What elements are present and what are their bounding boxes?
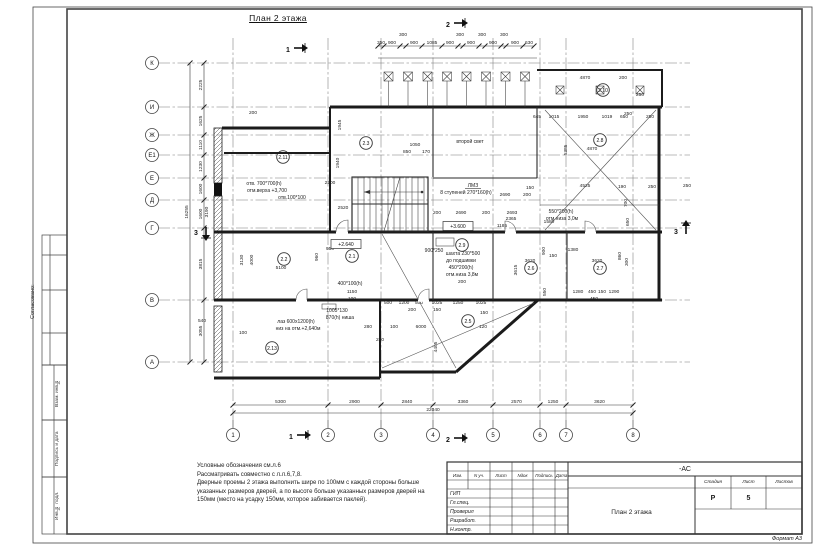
dim-label: 1015 <box>549 114 560 120</box>
room-tag: 2.5 <box>465 319 472 325</box>
dim-label: 900 <box>467 40 475 46</box>
dim-label: 1050 <box>410 142 421 148</box>
dim-label: 300 <box>456 32 464 38</box>
dim-label: 1280 <box>573 289 584 295</box>
section-mark <box>294 43 308 53</box>
section-label: 2 <box>446 437 450 444</box>
dim-label: 100 <box>390 324 398 330</box>
dim-label: 5385 <box>563 144 569 155</box>
dim-label: 4870 <box>587 146 598 152</box>
dim-label: 3620 <box>594 399 605 405</box>
dim-label: 200 <box>619 75 627 81</box>
dim-label: 2520 <box>338 205 349 211</box>
axis-label: Е1 <box>148 153 156 159</box>
col-nuch: N уч. <box>468 471 490 480</box>
dim-label: 1250 <box>548 399 559 405</box>
col-izm: Изм. <box>447 471 468 480</box>
section-label: 3 <box>194 230 198 237</box>
dim-label: 2690 <box>456 210 467 216</box>
section-mark <box>454 433 468 443</box>
room-tag: 2.9 <box>459 243 466 249</box>
dim-label: 550 <box>542 288 548 296</box>
drawing-title: План 2 этажа <box>568 492 695 532</box>
room-tag: 2.8 <box>597 138 604 144</box>
annotation: 870(h) ниша <box>326 315 354 321</box>
role-razrabot: Разработ. <box>450 518 476 524</box>
dim-label: 200 <box>458 279 466 285</box>
dim-label: 250 <box>648 184 656 190</box>
section-label: 2 <box>446 22 450 29</box>
dim-label: 3360 <box>458 399 469 405</box>
annotation: низ на отм.+2,640м <box>276 326 321 332</box>
annotation: отм.низа 3,8м <box>446 272 479 278</box>
col-ndok: Nдок <box>512 471 533 480</box>
approved-label: Согласовано: <box>30 252 41 352</box>
side-box-podpis: Подпись и дата <box>55 421 66 476</box>
annotation: ЛМЗ <box>468 183 478 189</box>
dim-label: 1110 <box>198 140 204 150</box>
role-glspec: Гл.спец. <box>450 500 470 506</box>
dim-label: 100 <box>239 330 247 336</box>
axis-label: И <box>150 105 154 111</box>
drawing-sheet: 5300290028403360257012503620220402225162… <box>0 0 825 550</box>
dim-label: 900 <box>446 40 454 46</box>
dim-label: 1085 <box>427 40 438 46</box>
axis-label: К <box>150 61 154 67</box>
annotation: отм.верха +3,700 <box>247 188 287 194</box>
note-line: Дверные проемы 2 этажа выполнить шире по… <box>197 479 419 488</box>
side-box-vzam: Взам. инв.№ <box>55 366 66 419</box>
dim-label: 630 <box>525 40 533 46</box>
annotation: 450*200(h) <box>449 265 474 271</box>
sheet-value: 5 <box>731 489 766 508</box>
dim-label: 150 <box>549 253 557 259</box>
hatched-wall <box>214 128 222 183</box>
side-box-inv: Инв.№ подл. <box>55 478 66 533</box>
dim-label: 1150 <box>347 289 358 295</box>
dim-label: 860 <box>617 252 623 260</box>
dim-label: 900 <box>410 40 418 46</box>
dim-label: 900 <box>511 40 519 46</box>
dim-label: 4525 <box>580 183 591 189</box>
dim-label: 2840 <box>402 399 413 405</box>
role-gip: ГИП <box>450 491 460 497</box>
room-tag: 2.11 <box>278 155 288 161</box>
dim-label: 1945 <box>337 119 343 130</box>
dim-label: 200 <box>408 307 416 313</box>
dim-label: 960 <box>314 253 320 261</box>
dim-label: 650 <box>625 218 631 226</box>
room-tag: 2.2 <box>281 257 288 263</box>
level-mark: +3.600 <box>450 224 466 230</box>
sheets-label: Листов <box>766 477 802 487</box>
role-nkontr: Н.контр. <box>450 527 472 533</box>
dim-label: 540 <box>198 318 206 324</box>
dim-label: 4000 <box>249 254 255 265</box>
format-label: Формат А3 <box>702 536 802 542</box>
dim-label: 1230 <box>198 161 204 172</box>
dim-label: 300 <box>399 32 407 38</box>
dim-label: 1600 <box>198 183 204 194</box>
level-mark: +2.640 <box>338 242 354 248</box>
dim-label: 150 <box>480 310 488 316</box>
dim-label: 3055 <box>198 325 204 336</box>
section-label: 3 <box>674 229 678 236</box>
dim-label: 3190 <box>204 206 210 217</box>
room-tag: 2.1 <box>349 254 356 260</box>
section-mark <box>297 430 311 440</box>
stair <box>352 177 428 231</box>
dim-label: 450 <box>588 289 596 295</box>
section-mark <box>454 18 468 28</box>
annotation: лаз 600х1200(h) <box>277 319 315 325</box>
dim-label: 5100 <box>276 265 287 271</box>
wall-black-segment <box>214 183 222 196</box>
dim-label: 250 <box>683 183 691 189</box>
dim-label: 1380 <box>568 247 579 253</box>
col-podpis: Подпись <box>533 471 555 480</box>
dim-label: 1290 <box>609 289 620 295</box>
annotation: отм.низа 3,0м <box>546 216 579 222</box>
dim-label: 300 <box>500 32 508 38</box>
dim-label: 150 <box>433 307 441 313</box>
sheets-value <box>766 489 802 508</box>
role-proveril: Проверил <box>450 509 474 515</box>
room-tag: 2.7 <box>597 266 604 272</box>
dim-label: 150 <box>598 289 606 295</box>
dim-label: 1625 <box>198 115 204 126</box>
axis-label: Д <box>150 198 154 204</box>
note-line: указанных размеров дверей, а по высоте б… <box>197 488 425 497</box>
dim-label: 1185 <box>497 223 508 229</box>
dim-label: 3130 <box>239 254 245 265</box>
dim-label: 300 <box>624 258 630 266</box>
annotation: отв. 700*700(h) <box>246 181 281 187</box>
dim-label: 170 <box>422 149 430 155</box>
dim-label: 200 <box>433 210 441 216</box>
axis-label: Ж <box>149 133 155 139</box>
annotation: второй свет <box>456 138 484 145</box>
dim-label: 650 <box>620 114 628 120</box>
dim-label: 190 <box>618 184 626 190</box>
dim-label: 1940 <box>335 157 341 168</box>
note-line: Условные обозначения см.л.6 <box>197 462 281 471</box>
col-list: Лист <box>490 471 512 480</box>
stage-label: Стадия <box>695 477 731 487</box>
stage-value: Р <box>695 489 731 508</box>
dim-total-bottom: 22040 <box>426 407 440 413</box>
annotation: шахта 230*500 <box>446 251 480 257</box>
annotation: 900*250 <box>425 248 444 254</box>
dim-label: 200 <box>482 210 490 216</box>
dim-label: 3815 <box>198 258 204 269</box>
dim-label: 5300 <box>275 399 286 405</box>
dim-label: 280 <box>364 324 372 330</box>
axis-label: Е <box>150 176 154 182</box>
dim-label: 4405 <box>433 341 439 352</box>
doc-designation: -АС <box>568 463 802 475</box>
dim-label: 2570 <box>511 399 522 405</box>
dim-label: 2690 <box>500 192 511 198</box>
plan-title: План 2 этажа <box>232 13 324 23</box>
annotation: 400*100(h) <box>338 281 363 287</box>
dim-label: 6000 <box>416 324 427 330</box>
note-line: 150мм (место на усадку 150мм, которое за… <box>197 496 367 505</box>
section-mark <box>681 220 691 234</box>
room-tag: 2.6 <box>528 266 535 272</box>
dim-label: 1950 <box>578 114 589 120</box>
dim-total-left: 16255 <box>184 205 190 219</box>
dim-label: 300 <box>478 32 486 38</box>
dim-label: 350 <box>377 40 385 46</box>
annotation: отв.100*100 <box>278 195 306 201</box>
room-tag: 2.3 <box>363 141 370 147</box>
dim-label: 3615 <box>513 264 519 275</box>
axis-label: А <box>150 360 154 366</box>
annotation: до подшивки <box>446 258 476 264</box>
dim-label: 850 <box>403 149 411 155</box>
sheet-label: Лист <box>731 477 766 487</box>
dim-label: 1019 <box>602 114 613 120</box>
axis-label: В <box>150 298 154 304</box>
dim-label: 2225 <box>198 79 204 90</box>
dim-label: 900 <box>489 40 497 46</box>
section-label: 1 <box>286 47 290 54</box>
annotation: 8 ступеней 270*160(h) <box>440 189 492 196</box>
section-label: 1 <box>289 434 293 441</box>
dim-label: 2900 <box>349 399 360 405</box>
dim-label: 150 <box>526 185 534 191</box>
annotation: 550*200(h) <box>549 209 574 215</box>
dim-label: 900 <box>541 247 547 255</box>
room-tag: 2.13 <box>267 346 277 352</box>
dim-label: 4870 <box>580 75 591 81</box>
col-data: Дата <box>555 471 568 480</box>
dim-label: 2693 <box>507 210 518 216</box>
dim-label: 200 <box>523 192 531 198</box>
dim-label: 1600 <box>198 208 204 219</box>
dim-label: 200 <box>249 110 257 116</box>
note-line: Рассматривать совместно с л.л.6,7,8. <box>197 471 302 480</box>
dim-label: 900 <box>388 40 396 46</box>
